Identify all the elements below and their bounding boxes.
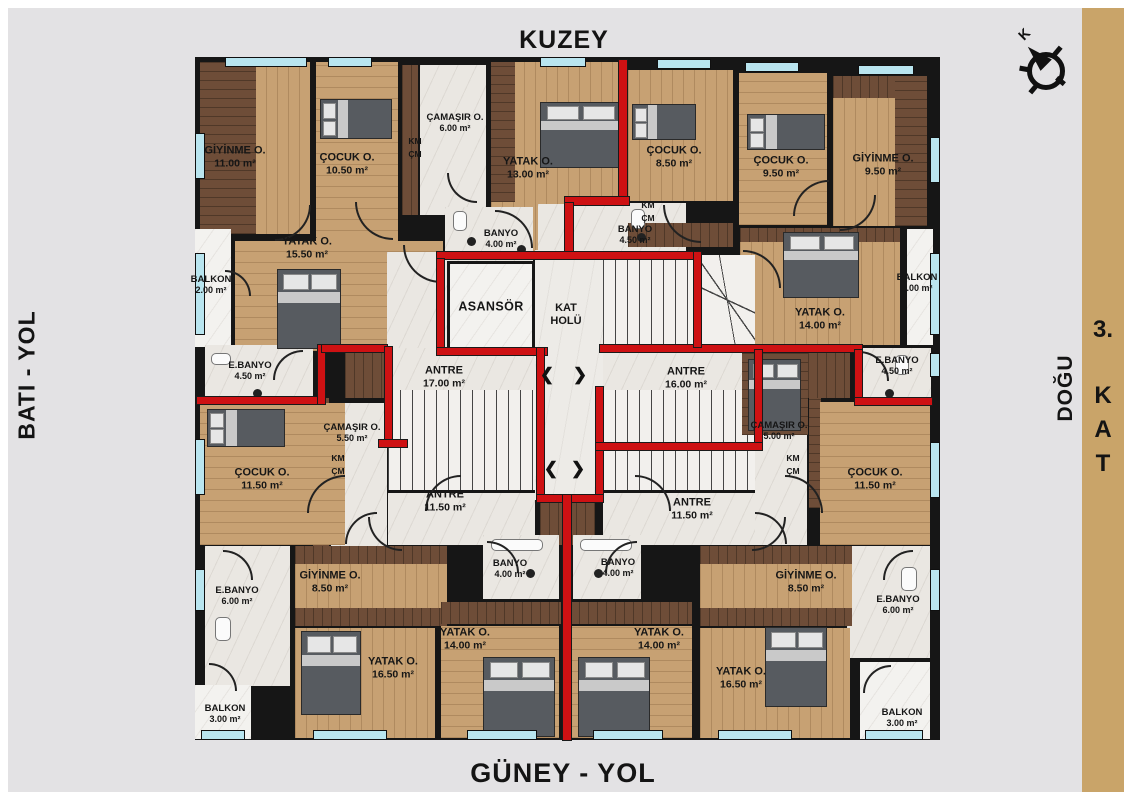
- red-boundary-line: [379, 440, 407, 447]
- room-name: ÇAMAŞIR O.: [427, 112, 484, 123]
- room-label-antre_se: ANTRE11.50 m²: [671, 496, 712, 521]
- room-name: BANYO: [484, 228, 518, 239]
- room-area: 16.50 m²: [716, 678, 766, 690]
- floor-band-se: [570, 602, 692, 624]
- bed-pillow: [585, 662, 614, 678]
- room-label-camasir_se: ÇAMAŞIR O.5.00 m²: [751, 420, 808, 442]
- red-boundary-line: [694, 252, 701, 347]
- floor-yatak13-wardrobe: [491, 62, 515, 202]
- window: [540, 57, 586, 67]
- room-area: 3.00 m²: [205, 714, 246, 725]
- room-label-balkon_sw: BALKON3.00 m²: [205, 703, 246, 725]
- laundry-tag: ÇM: [786, 466, 799, 476]
- room-label-camasir_sw: ÇAMAŞIR O.5.50 m²: [324, 422, 381, 444]
- room-name: BANYO: [618, 224, 652, 235]
- room-name: ÇOCUK O.: [320, 151, 375, 164]
- room-name: ANTRE: [424, 488, 465, 501]
- room-label-banyo_ne: BANYO4.50 m²: [618, 224, 652, 246]
- room-name: E.BANYO: [228, 360, 271, 371]
- window: [313, 730, 387, 740]
- window: [195, 439, 205, 495]
- bed: [632, 104, 696, 140]
- room-area: 5.00 m²: [751, 431, 808, 442]
- laundry-tag: KM: [641, 200, 654, 210]
- room-area: 9.50 m²: [754, 167, 809, 179]
- room-name: GİYİNME O.: [299, 569, 360, 582]
- room-label-antre_nw: ANTRE17.00 m²: [423, 364, 465, 389]
- room-name: E.BANYO: [875, 355, 918, 366]
- room-area: 4.00 m²: [601, 568, 635, 579]
- bed: [747, 114, 825, 150]
- room-label-ebanyo_nw: E.BANYO4.50 m²: [228, 360, 271, 382]
- laundry-tag: ÇM: [641, 213, 654, 223]
- room-area: 8.50 m²: [299, 582, 360, 594]
- window: [593, 730, 663, 740]
- window: [201, 730, 245, 740]
- room-area: 3.00 m²: [882, 718, 923, 729]
- room-name: ÇOCUK O.: [235, 466, 290, 479]
- room-name: E.BANYO: [215, 585, 258, 596]
- room-area: 6.00 m²: [427, 123, 484, 134]
- room-name: BALKON: [205, 703, 246, 714]
- floor-wardrobe-sw: [345, 348, 385, 398]
- room-area: 5.50 m²: [324, 433, 381, 444]
- window: [930, 353, 940, 377]
- floor-stairs-upper: [603, 252, 695, 344]
- room-label-banyo_sw: BANYO4.00 m²: [493, 558, 527, 580]
- room-area: 2.00 m²: [897, 283, 938, 294]
- room-area: 17.00 m²: [423, 377, 465, 389]
- bed-pillow: [547, 106, 579, 120]
- room-area: 11.50 m²: [671, 509, 712, 521]
- window: [657, 59, 711, 69]
- room-name: ÇOCUK O.: [647, 144, 702, 157]
- bed-sheet: [579, 680, 649, 691]
- window: [930, 442, 940, 498]
- bed: [207, 409, 285, 447]
- window: [865, 730, 923, 740]
- bed-pillow: [323, 103, 336, 119]
- bed: [483, 657, 555, 737]
- compass-north-label: K: [1015, 25, 1033, 43]
- room-name: ANTRE: [423, 364, 465, 377]
- bed-sheet: [484, 680, 554, 691]
- room-label-cocuk_nw: ÇOCUK O.10.50 m²: [320, 151, 375, 176]
- window: [930, 137, 940, 183]
- fixture-dot: [467, 237, 476, 246]
- bed-pillow: [771, 632, 796, 648]
- room-label-giyinme_sw: GİYİNME O.8.50 m²: [299, 569, 360, 594]
- bed-pillow: [750, 118, 764, 132]
- room-name: YATAK O.: [440, 626, 490, 639]
- room-area: 14.00 m²: [440, 639, 490, 651]
- red-boundary-line: [437, 259, 444, 355]
- room-label-antre_sw: ANTRE11.50 m²: [424, 488, 465, 513]
- room-label-balkon_se: BALKON3.00 m²: [882, 707, 923, 729]
- window: [858, 65, 914, 75]
- floor-giyinme-ne-wardrobe-side: [895, 76, 927, 226]
- direction-arrow-icon: ❯: [571, 459, 585, 479]
- bed-sheet: [766, 115, 777, 149]
- room-label-asansor: ASANSÖR: [458, 300, 523, 315]
- bed-pillow: [750, 133, 764, 147]
- compass-tick-icon: [1052, 46, 1062, 57]
- window: [718, 730, 792, 740]
- room-label-yatak_sw2: YATAK O.14.00 m²: [440, 626, 490, 651]
- bathroom-fixture: [453, 211, 467, 231]
- floor-wardrobe-se: [808, 348, 850, 398]
- room-area: 11.50 m²: [424, 501, 465, 513]
- room-label-yatak_se2: YATAK O.16.50 m²: [716, 665, 766, 690]
- label-north: KUZEY: [519, 26, 609, 55]
- window: [467, 730, 537, 740]
- floor-strip: 3. K A T: [1082, 8, 1124, 792]
- bed-pillow: [210, 429, 224, 444]
- laundry-tag: KM: [331, 453, 344, 463]
- room-name: GİYİNME O.: [204, 144, 265, 157]
- floor-number: 3.: [1093, 318, 1113, 342]
- elevator-label: ASANSÖR: [458, 300, 523, 315]
- room-area: 14.00 m²: [634, 639, 684, 651]
- room-label-banyo_nw: BANYO4.00 m²: [484, 228, 518, 250]
- room-area: 14.00 m²: [795, 319, 845, 331]
- room-label-balkon_nw: BALKON2.00 m²: [191, 274, 232, 296]
- room-name: ANTRE: [665, 365, 707, 378]
- floor-band-sw: [441, 602, 561, 624]
- bed-pillow: [522, 662, 551, 678]
- room-name: YATAK O.: [795, 306, 845, 319]
- red-boundary-line: [385, 347, 392, 447]
- window: [225, 57, 307, 67]
- room-name: BANYO: [493, 558, 527, 569]
- room-area: 4.50 m²: [618, 235, 652, 246]
- bed: [320, 99, 392, 139]
- red-boundary-line: [437, 252, 701, 259]
- room-name: YATAK O.: [282, 235, 332, 248]
- room-name: YATAK O.: [634, 626, 684, 639]
- floor-giyinme-sw-wardrobe-bottom: [295, 608, 447, 626]
- bed-pillow: [333, 636, 357, 653]
- room-name: ÇOCUK O.: [848, 466, 903, 479]
- bathroom-fixture: [215, 617, 231, 641]
- red-boundary-line: [855, 350, 862, 405]
- hall-label-line2: HOLÜ: [550, 315, 581, 328]
- room-area: 4.50 m²: [228, 371, 271, 382]
- red-boundary-line: [565, 203, 573, 259]
- red-boundary-line: [855, 398, 932, 405]
- floor-giyinme-se-wardrobe-top: [700, 546, 852, 564]
- room-name: BANYO: [601, 557, 635, 568]
- bed-sheet: [766, 650, 826, 661]
- laundry-tag: KM: [408, 136, 421, 146]
- room-area: 13.00 m²: [503, 168, 553, 180]
- red-boundary-line: [322, 345, 387, 352]
- room-label-giyinme_se: GİYİNME O.8.50 m²: [775, 569, 836, 594]
- bed-pillow: [635, 123, 647, 137]
- red-boundary-line: [600, 345, 862, 352]
- floor-giyinme-se-wardrobe-bottom: [700, 608, 852, 626]
- room-area: 4.50 m²: [875, 366, 918, 377]
- room-label-giyinme_nw: GİYİNME O.11.00 m²: [204, 144, 265, 169]
- red-boundary-line: [565, 197, 629, 205]
- room-name: BALKON: [191, 274, 232, 285]
- bed-pillow: [790, 236, 820, 250]
- room-name: BALKON: [882, 707, 923, 718]
- room-label-kat-holu: KATHOLÜ: [550, 302, 581, 328]
- room-name: ÇAMAŞIR O.: [751, 420, 808, 431]
- room-area: 15.50 m²: [282, 248, 332, 260]
- bed: [277, 269, 341, 349]
- direction-arrow-icon: ❮: [544, 459, 558, 479]
- compass-tick-icon: [1019, 66, 1030, 73]
- bed-pillow: [283, 274, 309, 290]
- bed-pillow: [798, 632, 823, 648]
- bed: [301, 631, 361, 715]
- window: [930, 253, 940, 335]
- room-name: E.BANYO: [876, 594, 919, 605]
- window: [930, 569, 940, 611]
- room-area: 8.50 m²: [775, 582, 836, 594]
- room-name: BALKON: [897, 272, 938, 283]
- red-boundary-line: [437, 348, 547, 355]
- room-label-banyo_se: BANYO4.00 m²: [601, 557, 635, 579]
- window: [328, 57, 372, 67]
- room-label-ebanyo_ne: E.BANYO4.50 m²: [875, 355, 918, 377]
- floor-letter-a: A: [1094, 418, 1111, 442]
- room-label-cocuk_ne1: ÇOCUK O.8.50 m²: [647, 144, 702, 169]
- hall-label-line1: KAT: [550, 302, 581, 315]
- window: [745, 62, 799, 72]
- red-boundary-line: [197, 397, 324, 404]
- red-boundary-line: [563, 495, 571, 740]
- compass-tick-icon: [1028, 84, 1038, 95]
- room-area: 8.50 m²: [647, 157, 702, 169]
- room-label-ebanyo_se: E.BANYO6.00 m²: [876, 594, 919, 616]
- room-name: GİYİNME O.: [775, 569, 836, 582]
- room-label-yatak_nw2: YATAK O.15.50 m²: [282, 235, 332, 260]
- room-area: 16.00 m²: [665, 378, 707, 390]
- room-label-antre_ne: ANTRE16.00 m²: [665, 365, 707, 390]
- floor-letter-k: K: [1094, 384, 1111, 408]
- frame-left: [0, 0, 8, 800]
- room-label-yatak_sw1: YATAK O.16.50 m²: [368, 655, 418, 680]
- floor-plan-page: 3. K A T KUZEY GÜNEY - YOL BATI - YOL DO…: [0, 0, 1132, 800]
- bed-pillow: [307, 636, 331, 653]
- room-area: 9.50 m²: [852, 165, 913, 177]
- room-area: 4.00 m²: [493, 569, 527, 580]
- label-south: GÜNEY - YOL: [470, 758, 656, 789]
- laundry-tag: KM: [786, 453, 799, 463]
- bed-sheet: [226, 410, 237, 446]
- red-boundary-line: [596, 443, 762, 450]
- room-label-yatak_nw: YATAK O.13.00 m²: [503, 155, 553, 180]
- bed-sheet: [302, 655, 360, 666]
- floor-giyinme-sw-wardrobe-top: [295, 546, 447, 564]
- bed: [765, 627, 827, 707]
- room-area: 11.50 m²: [235, 479, 290, 491]
- floor-letter-t: T: [1096, 452, 1111, 476]
- room-label-ebanyo_sw: E.BANYO6.00 m²: [215, 585, 258, 607]
- red-boundary-line: [619, 60, 627, 199]
- room-name: ANTRE: [671, 496, 712, 509]
- bed-sheet: [541, 121, 619, 130]
- room-area: 11.00 m²: [204, 157, 265, 169]
- bed: [783, 232, 859, 298]
- room-label-giyinme_ne: GİYİNME O.9.50 m²: [852, 152, 913, 177]
- bed-pillow: [311, 274, 337, 290]
- floor-stairs-left: [388, 390, 535, 490]
- room-name: GİYİNME O.: [852, 152, 913, 165]
- bed-pillow: [490, 662, 519, 678]
- room-label-yatak_ne: YATAK O.14.00 m²: [795, 306, 845, 331]
- bed-pillow: [635, 108, 647, 122]
- room-name: ÇOCUK O.: [754, 154, 809, 167]
- red-boundary-line: [318, 345, 325, 404]
- bed-pillow: [617, 662, 646, 678]
- room-name: YATAK O.: [368, 655, 418, 668]
- room-area: 2.00 m²: [191, 285, 232, 296]
- bed-sheet: [278, 292, 340, 303]
- bed-pillow: [777, 364, 798, 379]
- bed-pillow: [824, 236, 854, 250]
- bed-sheet: [784, 251, 858, 260]
- room-area: 11.50 m²: [848, 479, 903, 491]
- room-area: 16.50 m²: [368, 668, 418, 680]
- bed-sheet: [338, 100, 348, 138]
- bed: [578, 657, 650, 737]
- room-area: 4.00 m²: [484, 239, 518, 250]
- frame-top: [0, 0, 1132, 8]
- frame-bottom: [0, 792, 1132, 800]
- room-area: 10.50 m²: [320, 164, 375, 176]
- room-name: YATAK O.: [716, 665, 766, 678]
- floor-stairs-right: [603, 390, 763, 490]
- room-label-cocuk_ne2: ÇOCUK O.9.50 m²: [754, 154, 809, 179]
- room-label-yatak_se1: YATAK O.14.00 m²: [634, 626, 684, 651]
- laundry-tag: ÇM: [408, 149, 421, 159]
- fixture-dot: [885, 389, 894, 398]
- room-area: 6.00 m²: [876, 605, 919, 616]
- room-name: ÇAMAŞIR O.: [324, 422, 381, 433]
- bed-sheet: [648, 105, 657, 139]
- laundry-tag: ÇM: [331, 466, 344, 476]
- bed-pillow: [323, 121, 336, 137]
- label-east: DOĞU: [1054, 355, 1078, 422]
- bed-pillow: [583, 106, 615, 120]
- room-label-cocuk_se: ÇOCUK O.11.50 m²: [848, 466, 903, 491]
- window: [195, 569, 205, 611]
- direction-arrow-icon: ❯: [573, 365, 587, 385]
- room-name: YATAK O.: [503, 155, 553, 168]
- label-west: BATI - YOL: [14, 310, 41, 439]
- frame-right: [1124, 0, 1132, 800]
- building-plan: GİYİNME O.11.00 m²ÇOCUK O.10.50 m²ÇAMAŞI…: [195, 57, 940, 740]
- room-label-cocuk_sw: ÇOCUK O.11.50 m²: [235, 466, 290, 491]
- bed-pillow: [210, 413, 224, 428]
- direction-arrow-icon: ❮: [540, 365, 554, 385]
- room-label-camasir_nw: ÇAMAŞIR O.6.00 m²: [427, 112, 484, 134]
- fixture-dot: [526, 569, 535, 578]
- room-area: 6.00 m²: [215, 596, 258, 607]
- room-label-balkon_ne: BALKON2.00 m²: [897, 272, 938, 294]
